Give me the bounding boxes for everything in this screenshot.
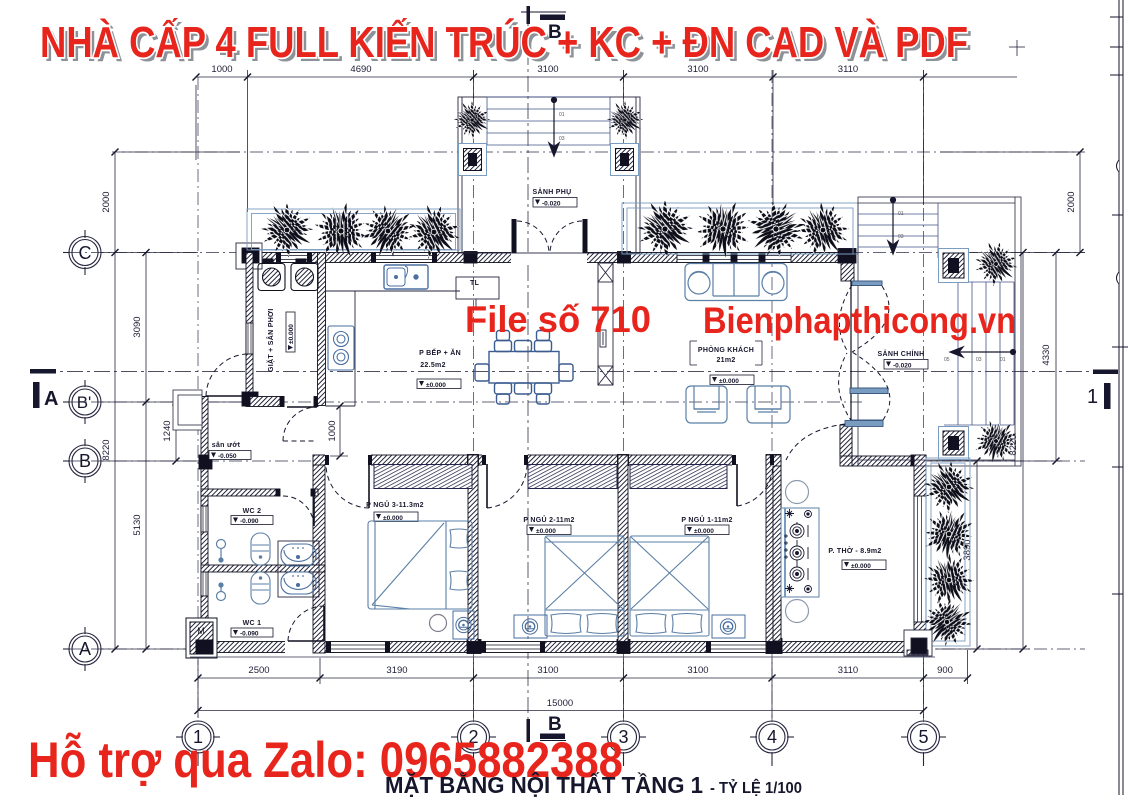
svg-text:Bienphapthicong.vn: Bienphapthicong.vn <box>703 300 1016 341</box>
svg-text:MẶT BẰNG NỘI THẤT TẦNG 1: MẶT BẰNG NỘI THẤT TẦNG 1 <box>385 771 703 798</box>
svg-text:NHÀ CẤP 4 FULL KIẾN TRÚC + KC: NHÀ CẤP 4 FULL KIẾN TRÚC + KC + ĐN CAD V… <box>40 17 968 67</box>
svg-text:- TỶ LỆ 1/100: - TỶ LỆ 1/100 <box>710 778 802 797</box>
svg-text:File số 710: File số 710 <box>465 299 651 340</box>
